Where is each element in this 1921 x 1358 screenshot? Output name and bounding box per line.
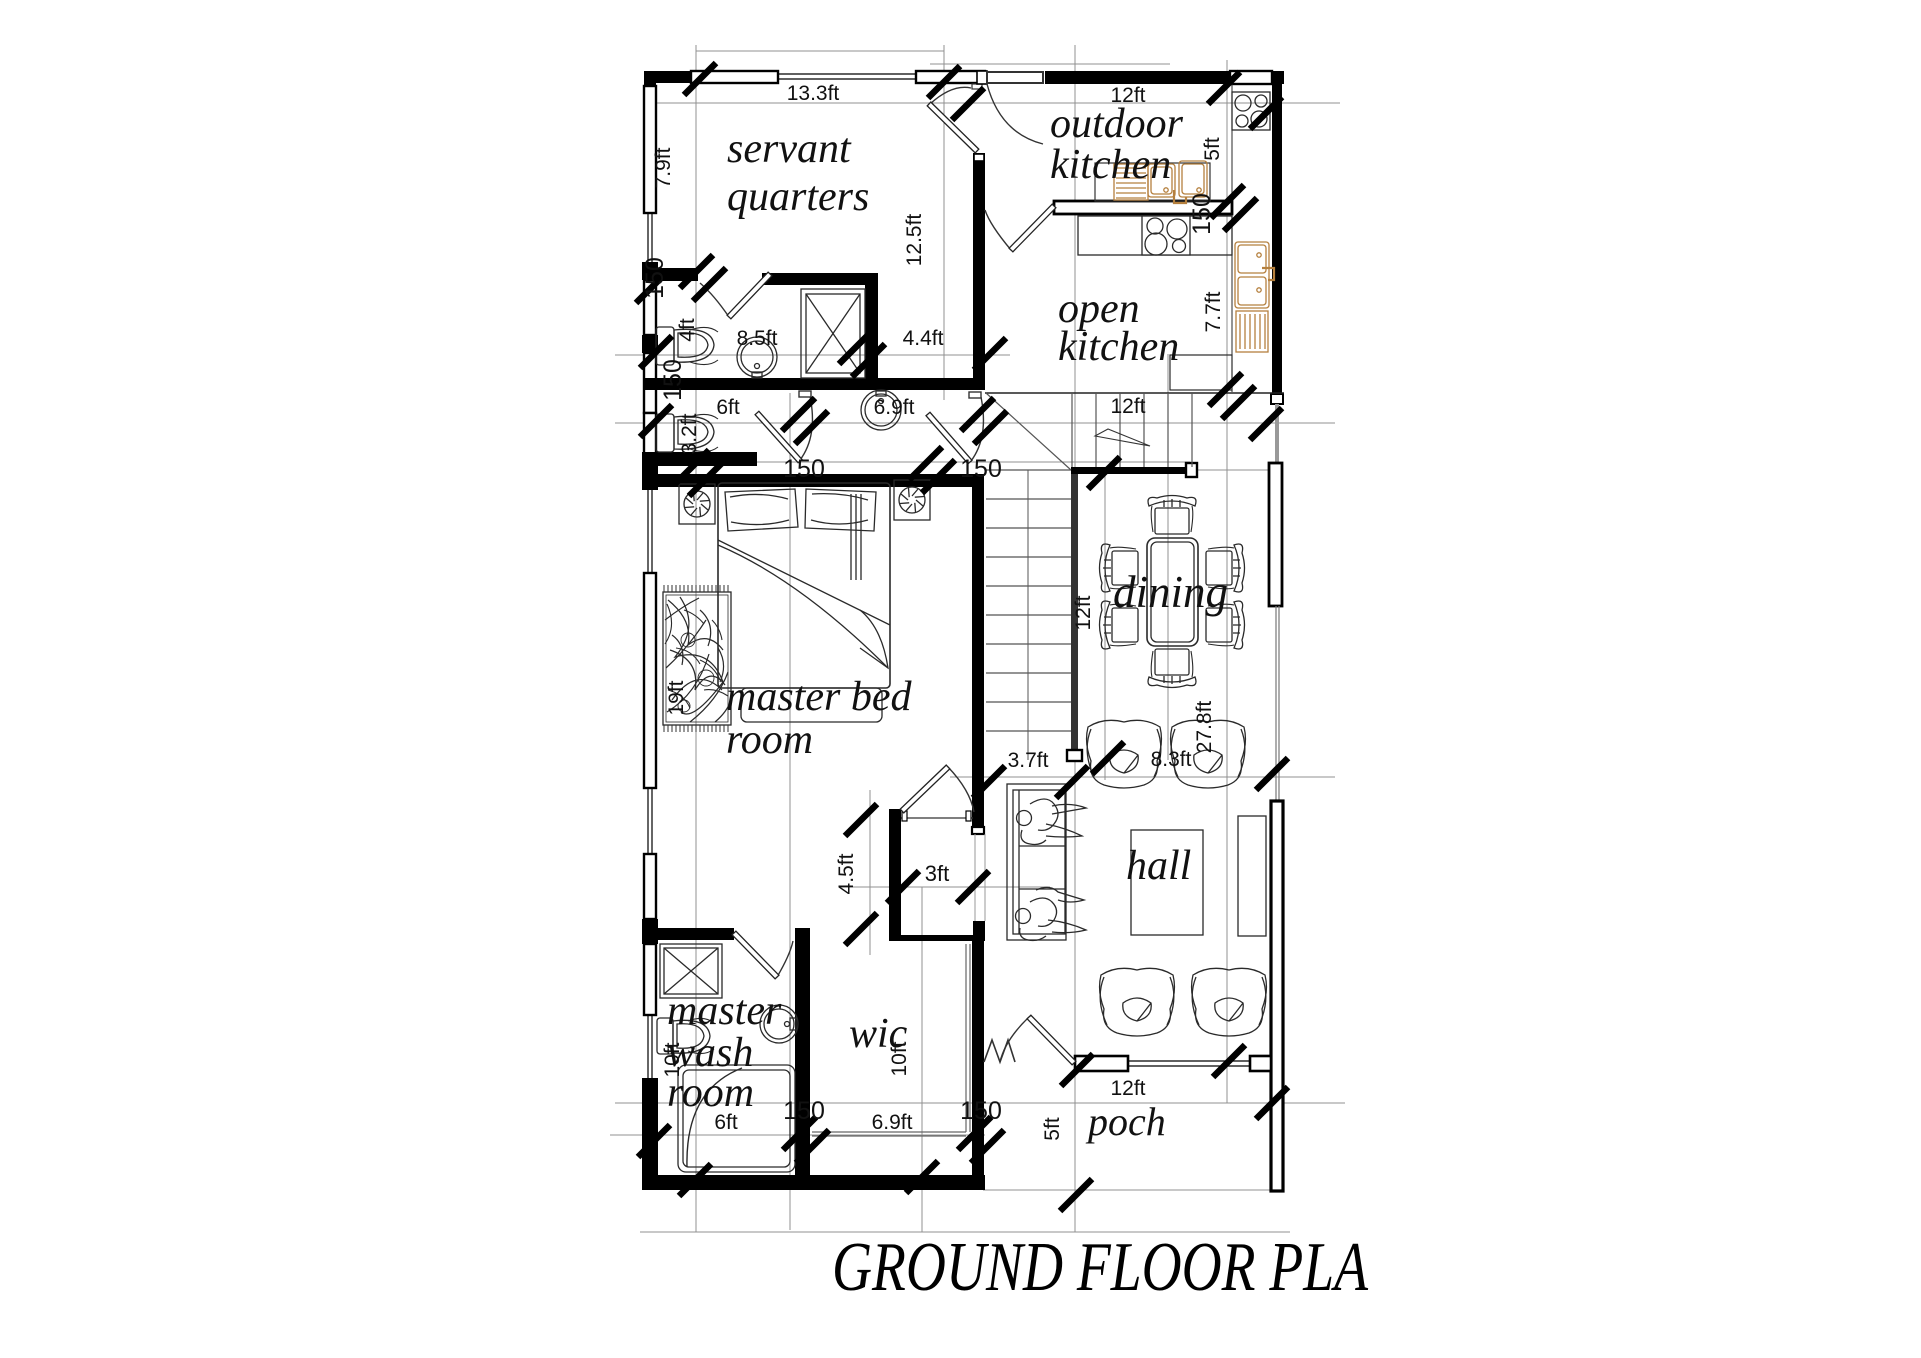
svg-text:12ft: 12ft <box>1110 1077 1145 1100</box>
svg-text:150: 150 <box>641 257 669 299</box>
svg-text:150: 150 <box>783 1097 825 1125</box>
svg-text:3.7ft: 3.7ft <box>1008 749 1049 772</box>
svg-text:master: master <box>667 988 782 1034</box>
svg-text:5ft: 5ft <box>1201 137 1224 161</box>
svg-text:150: 150 <box>783 455 825 483</box>
svg-text:8.5ft: 8.5ft <box>737 327 778 350</box>
svg-text:dining: dining <box>1113 567 1228 617</box>
svg-text:master bed: master bed <box>726 674 912 720</box>
svg-text:12ft: 12ft <box>1072 595 1095 630</box>
svg-text:6ft: 6ft <box>714 1111 738 1134</box>
svg-text:4ft: 4ft <box>676 318 699 342</box>
svg-text:150: 150 <box>960 455 1002 483</box>
svg-text:7.9ft: 7.9ft <box>652 147 675 188</box>
svg-text:27.8ft: 27.8ft <box>1193 701 1216 754</box>
svg-text:quarters: quarters <box>727 174 869 220</box>
svg-text:12ft: 12ft <box>1110 84 1145 107</box>
svg-text:6.9ft: 6.9ft <box>872 1111 913 1134</box>
svg-text:13.3ft: 13.3ft <box>787 82 840 105</box>
svg-text:4.4ft: 4.4ft <box>903 327 944 350</box>
svg-text:150: 150 <box>1188 193 1216 235</box>
svg-text:7.7ft: 7.7ft <box>1202 291 1225 332</box>
svg-text:150: 150 <box>659 359 687 401</box>
svg-text:19ft: 19ft <box>665 680 688 715</box>
svg-text:12.5ft: 12.5ft <box>903 214 926 267</box>
svg-text:servant: servant <box>727 126 852 172</box>
svg-text:150: 150 <box>960 1097 1002 1125</box>
svg-text:4.5ft: 4.5ft <box>835 853 858 894</box>
svg-text:hall: hall <box>1126 843 1191 889</box>
svg-text:3ft: 3ft <box>925 861 949 886</box>
svg-text:poch: poch <box>1085 1099 1166 1144</box>
svg-text:outdoor: outdoor <box>1050 101 1184 147</box>
svg-text:12ft: 12ft <box>1110 395 1145 418</box>
svg-text:6.9ft: 6.9ft <box>874 396 915 419</box>
svg-text:8.3ft: 8.3ft <box>1151 748 1192 771</box>
svg-text:5ft: 5ft <box>1041 1117 1064 1141</box>
svg-text:3.2ft: 3.2ft <box>678 413 701 454</box>
svg-text:6ft: 6ft <box>716 396 740 419</box>
svg-text:kitchen: kitchen <box>1058 324 1179 370</box>
svg-text:kitchen: kitchen <box>1050 142 1171 188</box>
svg-text:10ft: 10ft <box>888 1041 911 1076</box>
svg-text:room: room <box>726 717 813 763</box>
svg-text:10ft: 10ft <box>661 1042 684 1077</box>
svg-text:GROUND FLOOR PLA: GROUND FLOOR PLA <box>832 1229 1368 1306</box>
